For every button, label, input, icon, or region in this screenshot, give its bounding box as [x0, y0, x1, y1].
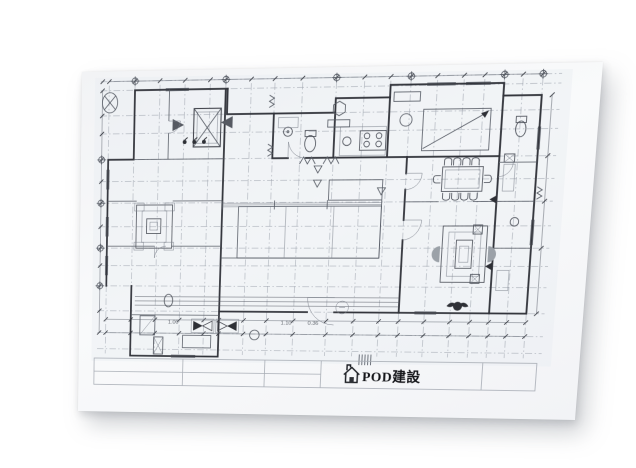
- company-logo-text: POD建設: [362, 368, 421, 385]
- dimension-label-3: 0.36: [307, 321, 318, 327]
- dimension-label-1: 1.00: [168, 320, 179, 326]
- house-icon: [343, 365, 359, 383]
- floor-plan-drawing: 1.00 1.10 0.36 POD建設: [78, 62, 603, 420]
- dimension-label-2: 1.10: [280, 321, 291, 327]
- photo-of-floor-plan: 1.00 1.10 0.36 POD建設: [0, 0, 636, 468]
- blueprint-paper: 1.00 1.10 0.36 POD建設: [78, 62, 603, 420]
